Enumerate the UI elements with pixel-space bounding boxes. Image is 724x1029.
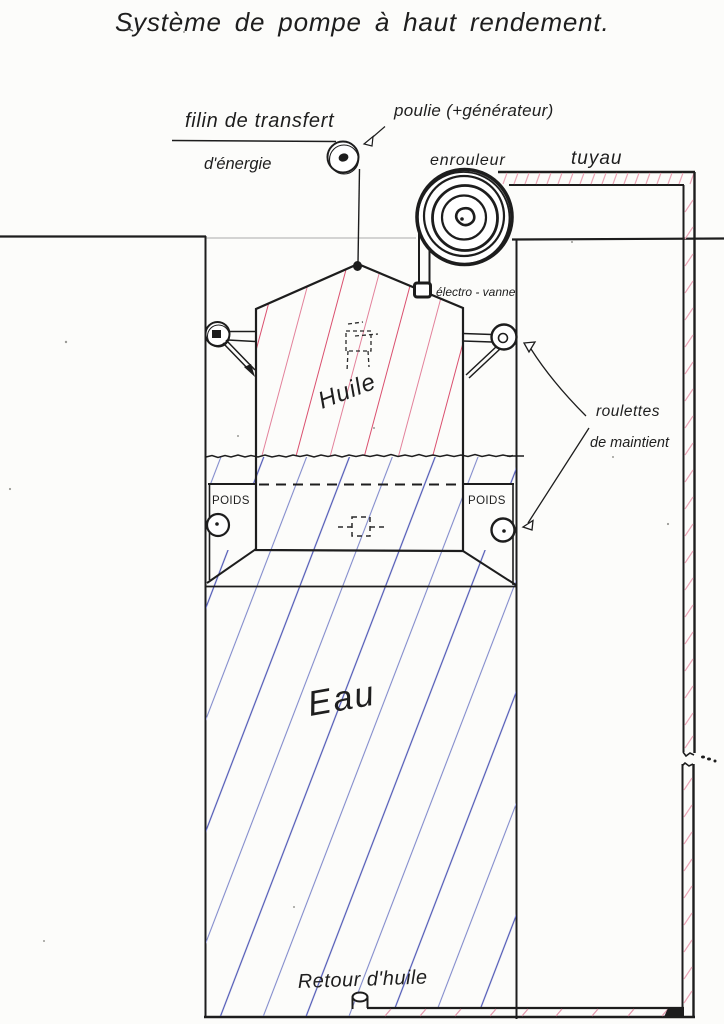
svg-text:POIDS: POIDS [468, 495, 506, 507]
svg-text:filin de transfert: filin de transfert [185, 110, 335, 132]
svg-text:enrouleur: enrouleur [430, 152, 506, 169]
svg-text:d'énergie: d'énergie [204, 155, 271, 173]
svg-text:POIDS: POIDS [212, 495, 250, 507]
svg-text:électro - vanne: électro - vanne [436, 285, 516, 299]
svg-text:de maintient: de maintient [590, 435, 670, 451]
svg-text:poulie (+générateur): poulie (+générateur) [393, 101, 554, 120]
svg-text:Système de pompe à haut rendem: Système de pompe à haut rendement. [115, 7, 609, 37]
svg-text:roulettes: roulettes [596, 403, 660, 420]
svg-text:tuyau: tuyau [571, 148, 622, 169]
svg-text:Retour d'huile: Retour d'huile [297, 966, 427, 993]
